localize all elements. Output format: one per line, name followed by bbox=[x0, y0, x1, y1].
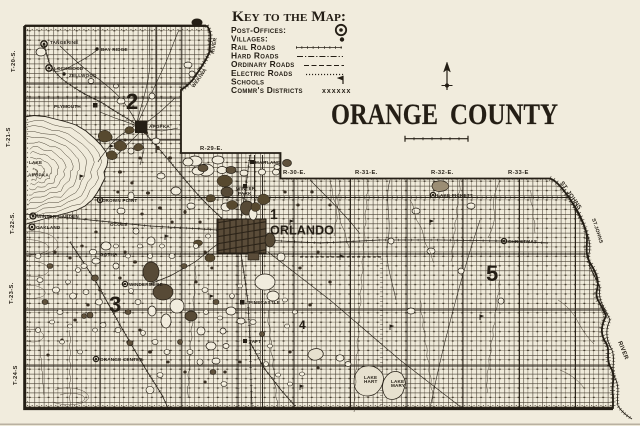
svg-text:WINDERMERE: WINDERMERE bbox=[129, 282, 163, 287]
svg-text:R-33-E: R-33-E bbox=[508, 170, 529, 176]
svg-text:MARY: MARY bbox=[391, 383, 405, 388]
svg-text:T-24-S: T-24-S bbox=[13, 365, 19, 385]
svg-text:APOPKA: APOPKA bbox=[149, 124, 170, 129]
svg-text:ORANGE: ORANGE bbox=[331, 98, 438, 131]
svg-text:HART: HART bbox=[364, 379, 378, 384]
svg-text:PLYMOUTH: PLYMOUTH bbox=[54, 104, 81, 109]
svg-text:CROWN POINT: CROWN POINT bbox=[102, 198, 137, 203]
svg-text:CHRISTMAS: CHRISTMAS bbox=[508, 239, 537, 244]
svg-text:3: 3 bbox=[109, 292, 121, 317]
svg-text:Key to the Map:: Key to the Map: bbox=[232, 9, 346, 25]
svg-text:T-20-S.: T-20-S. bbox=[11, 50, 17, 72]
svg-text:2: 2 bbox=[126, 89, 138, 114]
svg-text:LAKE: LAKE bbox=[29, 160, 42, 165]
svg-text:xxxxxx: xxxxxx bbox=[322, 88, 351, 95]
svg-text:PINECASTLE: PINECASTLE bbox=[249, 300, 280, 305]
svg-text:LOCKWOOD: LOCKWOOD bbox=[54, 66, 84, 71]
svg-text:BAY RIDGE: BAY RIDGE bbox=[101, 47, 128, 52]
svg-text:APOPKA: APOPKA bbox=[28, 173, 49, 178]
svg-text:WINTER GARDEN: WINTER GARDEN bbox=[37, 214, 79, 219]
svg-text:4: 4 bbox=[299, 318, 306, 332]
svg-text:GOTHA: GOTHA bbox=[100, 252, 118, 257]
svg-text:ZELLWOOD: ZELLWOOD bbox=[69, 73, 97, 78]
svg-text:COUNTY: COUNTY bbox=[450, 98, 558, 131]
svg-text:1: 1 bbox=[270, 206, 278, 222]
svg-text:T-23-S.: T-23-S. bbox=[9, 282, 15, 304]
svg-text:MAITLAND: MAITLAND bbox=[255, 160, 281, 165]
svg-text:TAFT: TAFT bbox=[249, 339, 261, 344]
svg-text:5: 5 bbox=[486, 261, 498, 286]
svg-text:LAKE PICKETT: LAKE PICKETT bbox=[437, 193, 473, 198]
svg-text:OCOEE: OCOEE bbox=[110, 222, 128, 227]
svg-text:TANGERINE: TANGERINE bbox=[50, 40, 79, 45]
svg-text:ORLANDO: ORLANDO bbox=[270, 224, 334, 238]
svg-text:T-21-S: T-21-S bbox=[6, 127, 12, 147]
svg-text:OAKLAND: OAKLAND bbox=[36, 225, 61, 230]
svg-text:R-32-E.: R-32-E. bbox=[431, 170, 454, 176]
svg-text:R-30-E.: R-30-E. bbox=[283, 170, 306, 176]
svg-text:R-29-E.: R-29-E. bbox=[200, 146, 223, 152]
svg-text:R-31-E.: R-31-E. bbox=[355, 170, 378, 176]
svg-text:ORANGE CENTER: ORANGE CENTER bbox=[100, 357, 143, 362]
svg-text:Commr's Districts: Commr's Districts bbox=[231, 85, 303, 95]
svg-text:T-22-S.: T-22-S. bbox=[10, 212, 16, 234]
svg-text:PARK: PARK bbox=[238, 191, 252, 196]
